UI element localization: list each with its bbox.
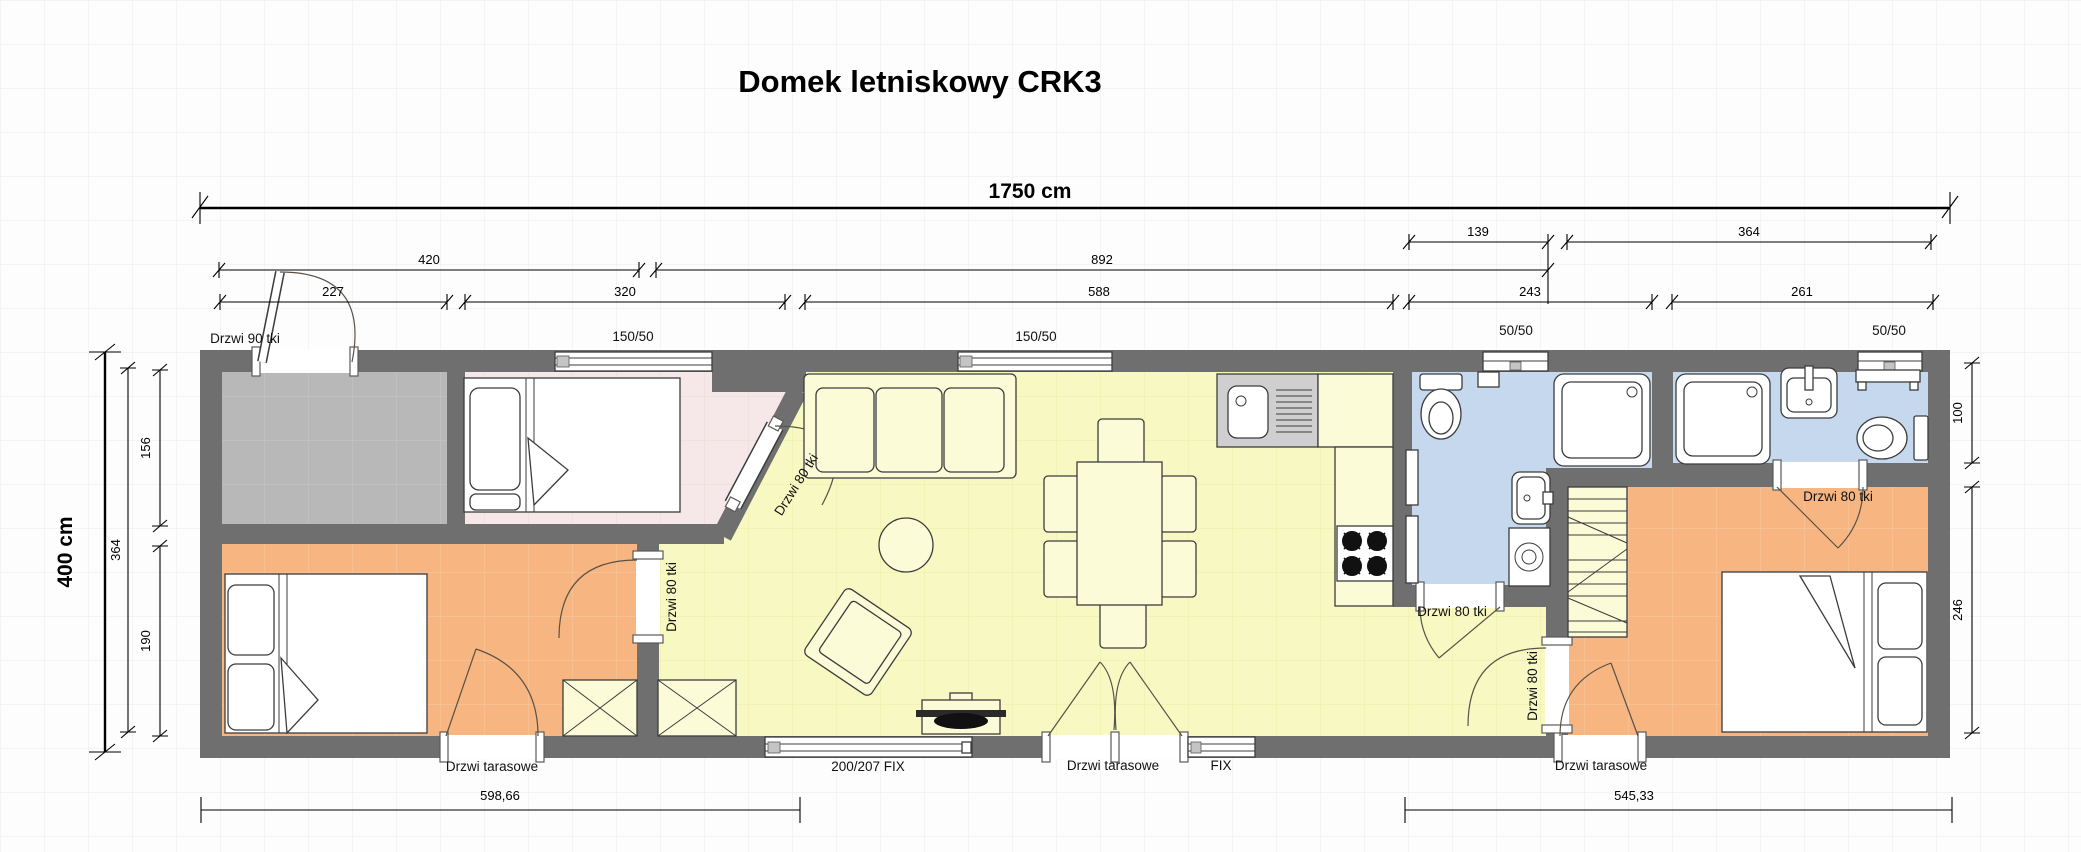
wall-gray-pink-divider bbox=[447, 372, 465, 524]
cistern-box bbox=[1478, 372, 1499, 387]
wall-panel-2 bbox=[1406, 516, 1418, 583]
floor-plan-page: Domek letniskowy CRK3 bbox=[0, 0, 2081, 852]
dining-chair bbox=[1160, 541, 1196, 597]
wardrobe-1 bbox=[563, 680, 637, 736]
bed-double-right bbox=[1722, 572, 1927, 732]
label-window-50-1: 50/50 bbox=[1499, 323, 1533, 338]
dining-chair bbox=[1100, 602, 1146, 648]
svg-text:243: 243 bbox=[1519, 284, 1541, 299]
svg-text:100: 100 bbox=[1950, 402, 1965, 424]
label-door-80-bedroom-left: Drzwi 80 tki bbox=[664, 562, 679, 632]
label-window-fix: FIX bbox=[1210, 758, 1231, 773]
dining-table bbox=[1077, 462, 1162, 605]
svg-text:190: 190 bbox=[138, 630, 153, 652]
window-50-50-2 bbox=[1858, 352, 1922, 371]
label-terrace-door-left: Drzwi tarasowe bbox=[446, 759, 538, 774]
svg-text:246: 246 bbox=[1950, 599, 1965, 621]
window-fix-200-207 bbox=[765, 737, 972, 757]
toilet-2 bbox=[1857, 416, 1928, 460]
washing-machine bbox=[1509, 528, 1550, 586]
stairs bbox=[1568, 487, 1627, 637]
sofa bbox=[804, 374, 1016, 478]
window-50-50-1 bbox=[1483, 352, 1548, 371]
bed-double-left bbox=[225, 574, 427, 733]
svg-text:588: 588 bbox=[1088, 284, 1110, 299]
label-window-150-1: 150/50 bbox=[612, 329, 653, 344]
dining-chair bbox=[1044, 476, 1080, 532]
window-150-50-2 bbox=[958, 352, 1112, 371]
svg-text:320: 320 bbox=[614, 284, 636, 299]
label-door-80-bath1: Drzwi 80 tki bbox=[1417, 604, 1487, 619]
window-fix bbox=[1188, 737, 1255, 757]
wall-panel-1 bbox=[1406, 450, 1418, 505]
label-terrace-door-middle: Drzwi tarasowe bbox=[1067, 758, 1159, 773]
shower-2 bbox=[1676, 374, 1770, 464]
svg-text:139: 139 bbox=[1467, 224, 1489, 239]
floor-terrace-gray bbox=[222, 372, 447, 524]
stove bbox=[1337, 526, 1393, 581]
label-door-80-bedroom-right: Drzwi 80 tki bbox=[1525, 651, 1540, 721]
svg-text:892: 892 bbox=[1091, 252, 1113, 267]
label-door-80-bath2: Drzwi 80 tki bbox=[1803, 489, 1873, 504]
svg-text:261: 261 bbox=[1791, 284, 1813, 299]
page-title: Domek letniskowy CRK3 bbox=[738, 64, 1102, 99]
svg-text:1750 cm: 1750 cm bbox=[989, 180, 1072, 203]
label-terrace-door-right: Drzwi tarasowe bbox=[1555, 758, 1647, 773]
svg-text:156: 156 bbox=[138, 437, 153, 459]
svg-text:400 cm: 400 cm bbox=[54, 516, 77, 587]
svg-text:420: 420 bbox=[418, 252, 440, 267]
shower-1 bbox=[1554, 374, 1650, 466]
floor-plan-drawing: Domek letniskowy CRK3 bbox=[0, 0, 2081, 852]
wall-shower-divider bbox=[1652, 372, 1673, 487]
svg-text:364: 364 bbox=[1738, 224, 1760, 239]
svg-text:598,66: 598,66 bbox=[480, 788, 520, 803]
label-window-150-2: 150/50 bbox=[1015, 329, 1056, 344]
label-window-fix200: 200/207 FIX bbox=[831, 759, 905, 774]
dining-chair bbox=[1160, 476, 1196, 532]
kitchen-sink-counter bbox=[1217, 374, 1318, 447]
svg-text:227: 227 bbox=[322, 284, 344, 299]
svg-text:545,33: 545,33 bbox=[1614, 788, 1654, 803]
washbasin-1 bbox=[1512, 472, 1553, 524]
dining-chair bbox=[1044, 541, 1080, 597]
label-door-90: Drzwi 90 tki bbox=[210, 331, 280, 346]
wall-horizontal-left bbox=[222, 524, 724, 544]
toilet-1 bbox=[1420, 374, 1462, 439]
washbasin-2 bbox=[1781, 366, 1837, 418]
wardrobe-2 bbox=[658, 680, 736, 736]
label-window-50-2: 50/50 bbox=[1872, 323, 1906, 338]
svg-text:364: 364 bbox=[108, 539, 123, 561]
coffee-table bbox=[879, 518, 933, 572]
window-150-50-1 bbox=[555, 352, 712, 371]
dining-chair bbox=[1098, 419, 1144, 465]
bed-single bbox=[464, 378, 680, 512]
